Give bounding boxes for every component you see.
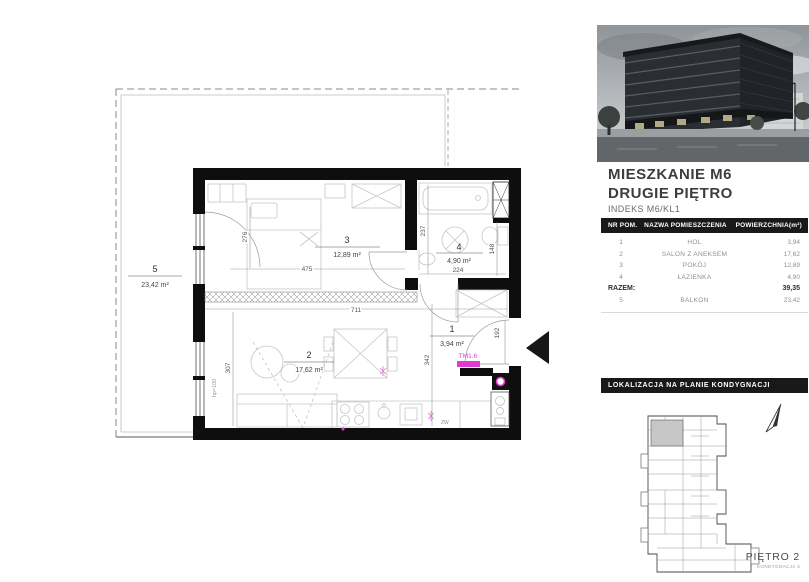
room-label-3: 3 12,89 m² (315, 235, 380, 259)
svg-text:224: 224 (453, 267, 464, 274)
key-plan (595, 396, 809, 574)
svg-text:4: 4 (456, 242, 461, 252)
floor-title: DRUGIE PIĘTRO (608, 184, 808, 203)
title-block: MIESZKANIE M6 DRUGIE PIĘTRO INDEKS M6/KL… (608, 165, 808, 214)
col-number: NR POM. (601, 222, 641, 229)
table-total-row: RAZEM: 39,35 (601, 283, 808, 295)
svg-text:4,90 m²: 4,90 m² (447, 258, 471, 265)
svg-text:192: 192 (494, 327, 501, 338)
svg-text:276: 276 (242, 231, 249, 242)
apartment-title: MIESZKANIE M6 (608, 165, 808, 184)
outer-walls (193, 168, 521, 440)
svg-text:3: 3 (344, 235, 349, 245)
svg-text:hp=100: hp=100 (212, 379, 218, 398)
location-header: LOKALIZACJA NA PLANIE KONDYGNACJI (601, 378, 808, 393)
room-table: 1 HOL 3,94 2 SALON Z ANEKSEM 17,62 3 POK… (601, 237, 808, 313)
floor-plan-drawing: TM1.6 475 276 711 307 237 224 148 192 34… (0, 0, 595, 582)
svg-text:342: 342 (424, 354, 431, 365)
svg-text:237: 237 (420, 225, 427, 236)
svg-text:12,89 m²: 12,89 m² (333, 252, 361, 259)
table-row: 4 ŁAZIENKA 4,90 (601, 272, 808, 284)
col-name: NAZWA POMIESZCZENIA (641, 222, 730, 229)
window-room3 (193, 210, 205, 288)
svg-text:1: 1 (449, 324, 454, 334)
svg-text:5: 5 (152, 264, 157, 274)
north-arrow-icon (766, 404, 781, 432)
room-table-header: NR POM. NAZWA POMIESZCZENIA POWIERZCHNIA… (601, 218, 808, 233)
table-row: 3 POKÓJ 12,89 (601, 260, 808, 272)
col-area: POWIERZCHNIA(m²) (730, 222, 808, 229)
svg-text:3,94 m²: 3,94 m² (440, 341, 464, 348)
window-room2 (193, 338, 205, 420)
room-label-5: 5 23,42 m² (128, 264, 182, 289)
dimension-lines (205, 185, 507, 426)
svg-text:711: 711 (351, 307, 362, 314)
radiator-label: TM1.6 (459, 353, 478, 360)
svg-text:23,42 m²: 23,42 m² (141, 282, 169, 289)
installation-shaft (493, 182, 509, 223)
building-photo (597, 25, 809, 162)
svg-text:475: 475 (302, 266, 313, 273)
svg-text:17,62 m²: 17,62 m² (295, 367, 323, 374)
svg-text:2: 2 (306, 350, 311, 360)
svg-text:ZW: ZW (441, 420, 449, 426)
table-row: 2 SALON Z ANEKSEM 17,62 (601, 249, 808, 261)
furniture-bedroom (208, 184, 401, 289)
entry-arrow-icon (526, 331, 549, 364)
room-label-2: 2 17,62 m² (284, 350, 334, 374)
index-label: INDEKS M6/KL1 (608, 204, 808, 214)
floor-label: PIĘTRO 2 KONDYGNACJA 3 (700, 551, 800, 569)
highlighted-unit (651, 420, 683, 446)
room-label-1: 1 3,94 m² (430, 324, 474, 348)
svg-text:148: 148 (489, 243, 496, 254)
svg-text:307: 307 (225, 362, 232, 373)
floorplan-sheet: { "plan": { "accent": "#e23bd4", "rooms"… (0, 0, 809, 582)
table-row: 1 HOL 3,94 (601, 237, 808, 249)
table-row-balcony: 5 BALKON 23,42 (601, 295, 808, 307)
